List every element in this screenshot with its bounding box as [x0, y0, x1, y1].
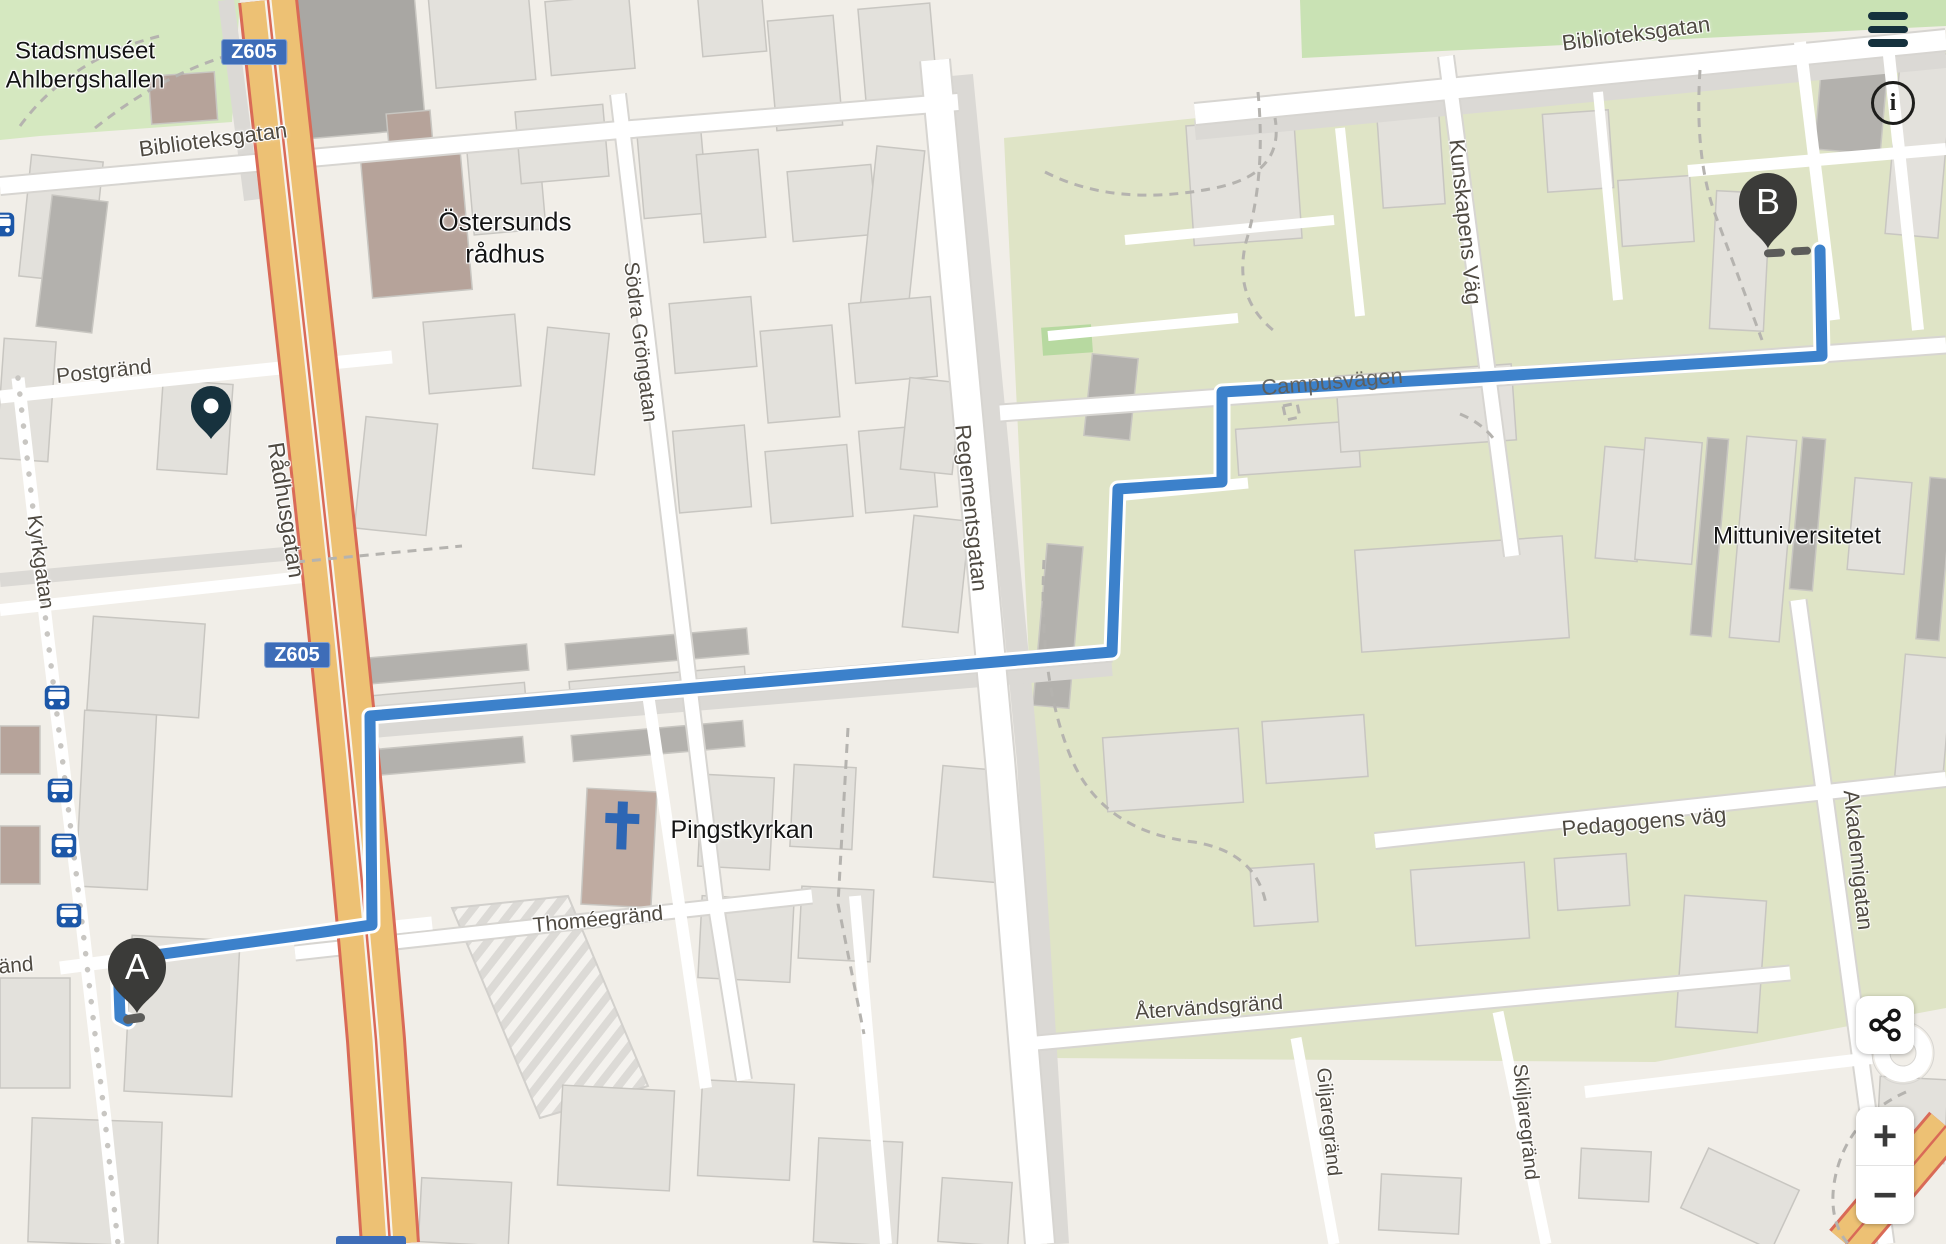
place-label-ostersunds-radhus: Östersunds rådhus: [439, 206, 572, 269]
map-graphics[interactable]: [0, 0, 1946, 1244]
route-shield-z605-top: Z605: [221, 39, 287, 65]
map-canvas[interactable]: Biblioteksgatan Biblioteksgatan Postgrän…: [0, 0, 1946, 1244]
hamburger-bar: [1868, 12, 1908, 20]
marker-a-letter: A: [125, 946, 149, 987]
marker-b-letter: B: [1756, 181, 1780, 222]
poi-location-pin: [187, 381, 235, 444]
bus-stop-icon: [44, 776, 76, 811]
bus-stop-icon: [48, 831, 80, 866]
place-label-pingstkyrkan: Pingstkyrkan: [670, 815, 813, 846]
route-start-marker-a[interactable]: A: [104, 931, 170, 1018]
route-end-marker-b[interactable]: B: [1735, 166, 1801, 253]
street-label-grand-partial: änd: [0, 953, 35, 980]
radhus-line2: rådhus: [439, 238, 572, 270]
zoom-out-button[interactable]: −: [1856, 1166, 1914, 1224]
hamburger-bar: [1868, 26, 1908, 34]
route-shield-z605-mid: Z605: [264, 642, 330, 668]
bus-stop-icon: [53, 901, 85, 936]
radhus-line1: Östersunds: [439, 206, 572, 238]
hamburger-bar: [1868, 39, 1908, 47]
stadsmuseet-line2: Ahlbergshallen: [6, 66, 165, 95]
route-shield-z605-bottom-partial: [336, 1236, 406, 1244]
hamburger-menu-button[interactable]: [1868, 12, 1908, 47]
place-label-stadsmuseet: Stadsmuséet Ahlbergshallen: [6, 37, 165, 96]
zoom-in-button[interactable]: +: [1856, 1107, 1914, 1165]
info-button[interactable]: i: [1871, 81, 1915, 125]
bus-stop-icon: [0, 210, 18, 245]
share-icon: [1868, 1008, 1902, 1042]
info-icon: i: [1890, 90, 1897, 117]
bus-stop-icon: [41, 683, 73, 718]
zoom-control: + −: [1856, 1107, 1914, 1224]
stadsmuseet-line1: Stadsmuséet: [6, 37, 165, 66]
church-cross-icon: [601, 799, 643, 857]
place-label-mittuniversitetet: Mittuniversitetet: [1713, 521, 1881, 550]
share-button[interactable]: [1856, 996, 1914, 1054]
